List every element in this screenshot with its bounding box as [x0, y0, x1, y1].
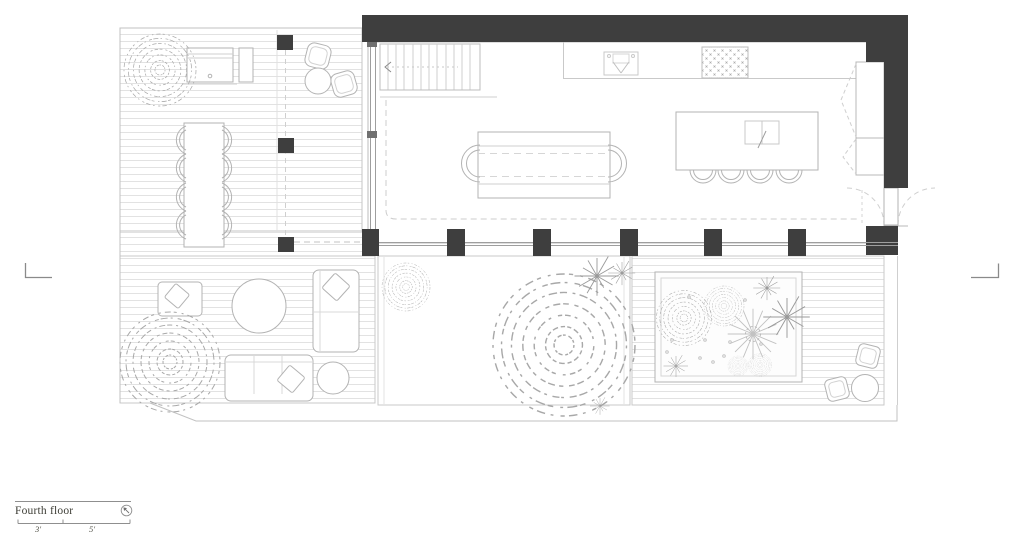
sofa-bottom: [225, 355, 313, 401]
floor-label: Fourth floor: [15, 505, 73, 517]
scale-segment-1-label: 3': [35, 524, 41, 534]
sofa-right: [313, 270, 359, 352]
title-block: Fourth floor 3' 5': [15, 494, 133, 537]
scale-bar: 3' 5': [15, 519, 133, 537]
door-leaf: [884, 188, 898, 225]
north-arrow-icon: [120, 504, 133, 517]
title-rule: [15, 501, 131, 502]
outdoor-dining-table: [176, 123, 231, 247]
terrace-mid-band: [120, 232, 362, 256]
planter-grass-burst: [728, 309, 779, 360]
lounge-chair: [855, 343, 882, 370]
counter-sink: [604, 52, 638, 75]
cooktop: [702, 47, 748, 78]
floor-plan-drawing: [0, 0, 1024, 549]
side-table-round: [852, 375, 879, 402]
ottoman: [317, 362, 349, 394]
scale-bar-rule: [15, 519, 133, 529]
scale-segment-2-label: 5': [89, 524, 95, 534]
north-wall: [362, 15, 908, 42]
chaise-lounge: [158, 282, 202, 316]
outdoor-round-table: [305, 68, 331, 94]
corner-pier: [866, 226, 898, 255]
indoor-dining-table: [462, 132, 627, 198]
corner-mark-left: [26, 263, 53, 278]
staircase: [380, 44, 497, 97]
east-wall-step: [866, 42, 884, 62]
corner-mark-right: [971, 264, 999, 278]
east-wall: [884, 42, 908, 188]
side-cabinet: [239, 48, 253, 82]
lounge-chair: [824, 376, 851, 403]
coffee-table: [232, 279, 286, 333]
floor-plan-sheet: Fourth floor 3' 5': [0, 0, 1024, 549]
